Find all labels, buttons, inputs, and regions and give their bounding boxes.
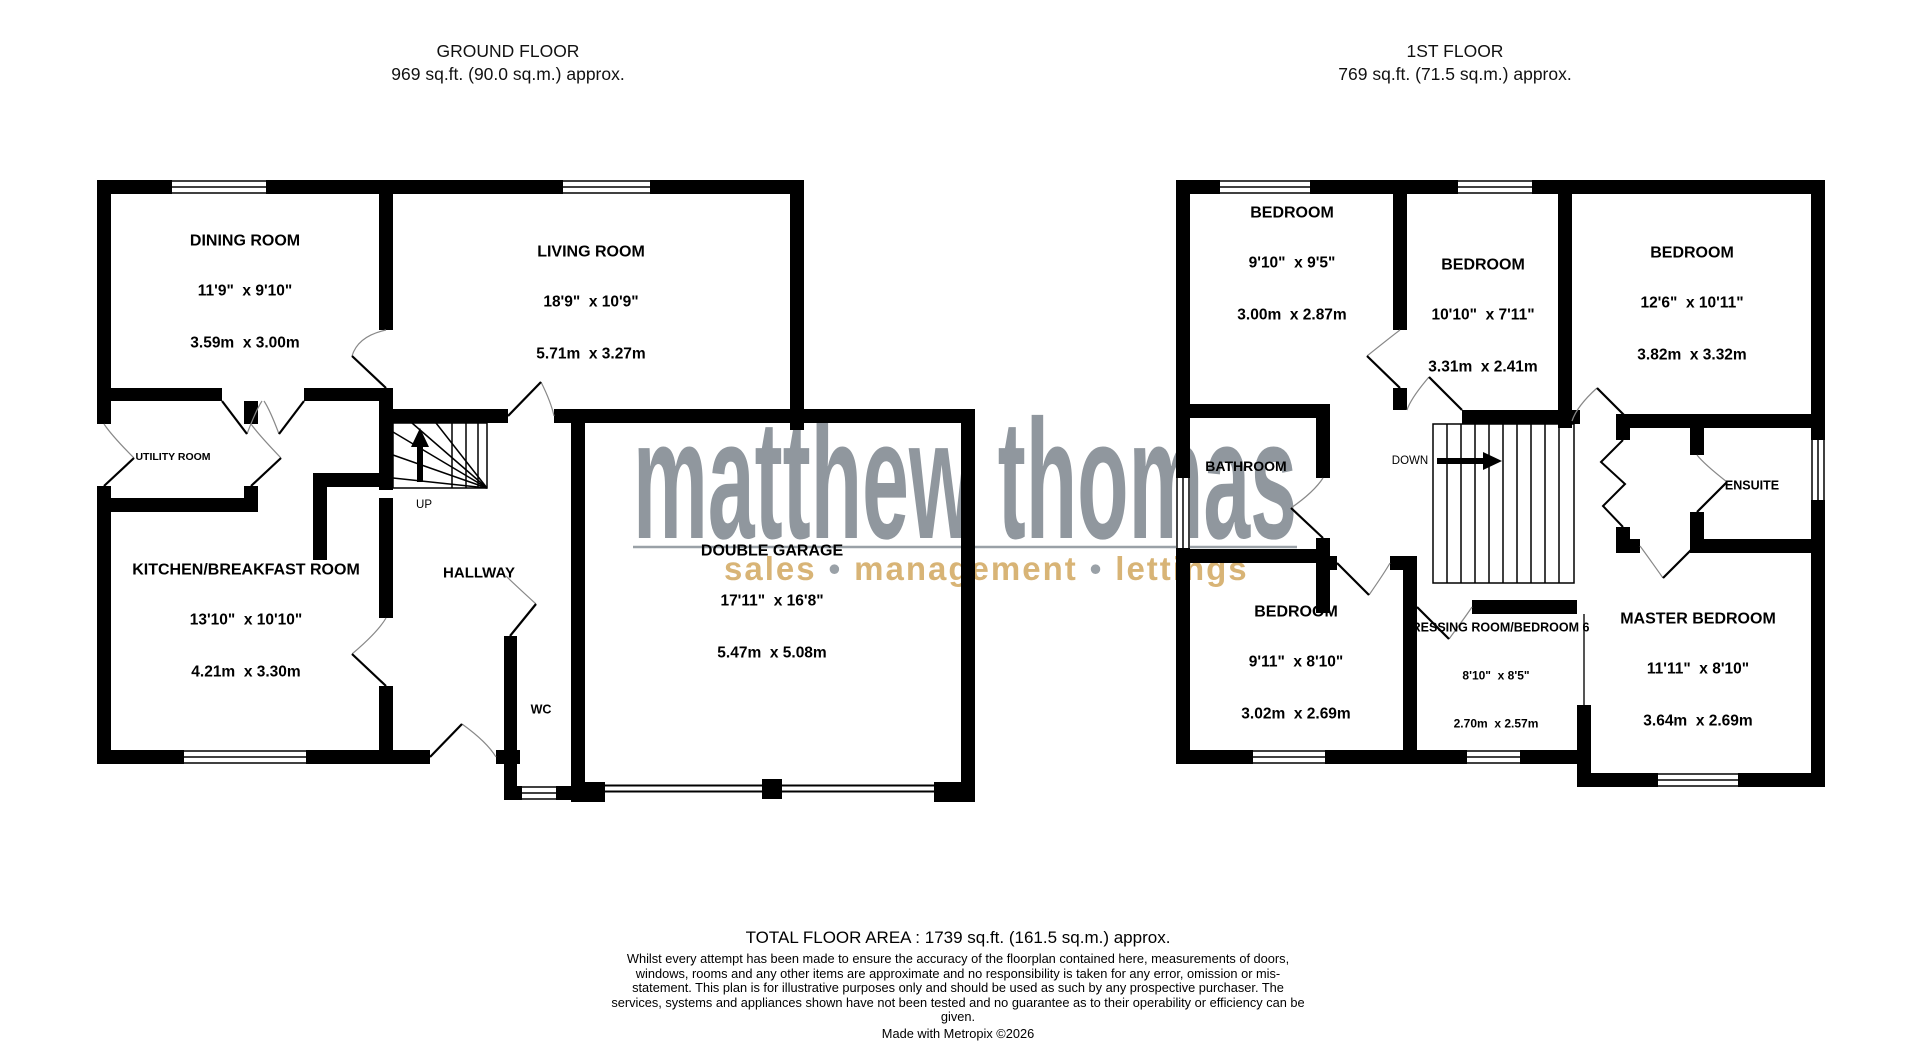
- ground-floor-title: GROUND FLOOR 969 sq.ft. (90.0 sq.m.) app…: [391, 40, 624, 86]
- metropix-credit: Made with Metropix ©2026: [882, 1026, 1034, 1041]
- room-label-bedroom4: BEDROOM 9'11" x 8'10" 3.02m x 2.69m: [1241, 569, 1350, 758]
- room-label-ensuite: ENSUITE: [1725, 445, 1779, 528]
- room-label-dressing: DRESSING ROOM/BEDROOM 6 8'10" x 8'5" 2.7…: [1403, 586, 1590, 765]
- floorplan-page: matthew thomas sales•management•lettings: [0, 0, 1920, 1041]
- room-label-dining: DINING ROOM 11'9" x 9'10" 3.59m x 3.00m: [190, 198, 300, 387]
- room-label-utility: UTILITY ROOM: [135, 417, 210, 497]
- room-label-bedroom1: BEDROOM 9'10" x 9'5" 3.00m x 2.87m: [1237, 170, 1346, 359]
- room-label-wc: WC: [531, 669, 552, 752]
- room-label-master: MASTER BEDROOM 11'11" x 8'10" 3.64m x 2.…: [1620, 576, 1776, 765]
- room-label-living: LIVING ROOM 18'9" x 10'9" 5.71m x 3.27m: [536, 209, 645, 398]
- total-floor-area: TOTAL FLOOR AREA : 1739 sq.ft. (161.5 sq…: [746, 928, 1171, 948]
- floorplan-canvas: matthew thomas sales•management•lettings: [0, 0, 1920, 1041]
- stairs-down-label: DOWN: [1392, 455, 1428, 467]
- ground-floor-stairs: [393, 423, 487, 488]
- disclaimer-text: Whilst every attempt has been made to en…: [608, 952, 1308, 1025]
- first-floor-stairs: [1433, 424, 1574, 583]
- room-label-bedroom3: BEDROOM 12'6" x 10'11" 3.82m x 3.32m: [1637, 210, 1746, 399]
- stairs-up-label: UP: [416, 499, 432, 511]
- room-label-bedroom2: BEDROOM 10'10" x 7'11" 3.31m x 2.41m: [1428, 222, 1537, 411]
- room-label-kitchen: KITCHEN/BREAKFAST ROOM 13'10" x 10'10" 4…: [132, 527, 360, 716]
- bifold-door: [1601, 440, 1625, 527]
- room-label-bathroom: BATHROOM: [1205, 424, 1286, 508]
- first-floor-title: 1ST FLOOR 769 sq.ft. (71.5 sq.m.) approx…: [1338, 40, 1571, 86]
- room-label-garage: DOUBLE GARAGE 17'11" x 16'8" 5.47m x 5.0…: [701, 508, 843, 697]
- room-label-hallway: HALLWAY: [443, 530, 515, 615]
